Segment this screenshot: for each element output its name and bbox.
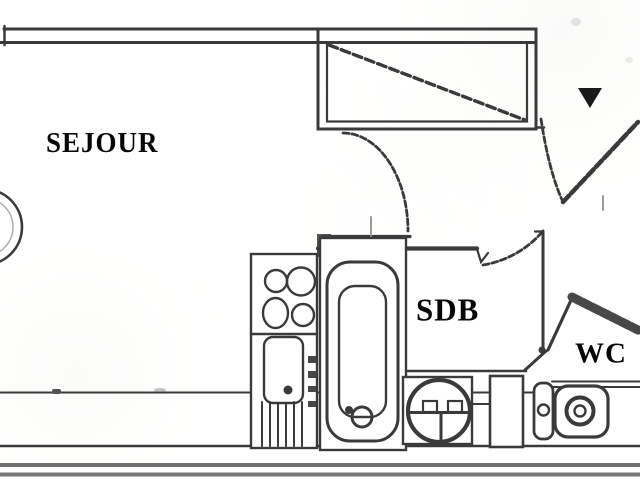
sdb-door-icon: [483, 231, 546, 354]
shower-door-icon: [490, 376, 523, 447]
toilet-bowl-icon: [555, 386, 608, 437]
interior-door-icon: [343, 133, 408, 236]
room-label-wc: WC: [575, 340, 627, 368]
round-table-icon: [0, 189, 22, 265]
entrance-arrow-icon: [578, 88, 602, 108]
floor-plan: SEJOUR SDB WC: [0, 0, 640, 480]
room-label-sdb: SDB: [416, 294, 479, 326]
room-label-sejour: SEJOUR: [46, 129, 159, 157]
bathtub-icon: [320, 238, 406, 450]
entry-door-icon: [541, 119, 638, 210]
floor-plan-drawing: [0, 0, 640, 480]
washbasin-icon: [403, 377, 472, 444]
toilet-cistern-icon: [534, 383, 553, 439]
